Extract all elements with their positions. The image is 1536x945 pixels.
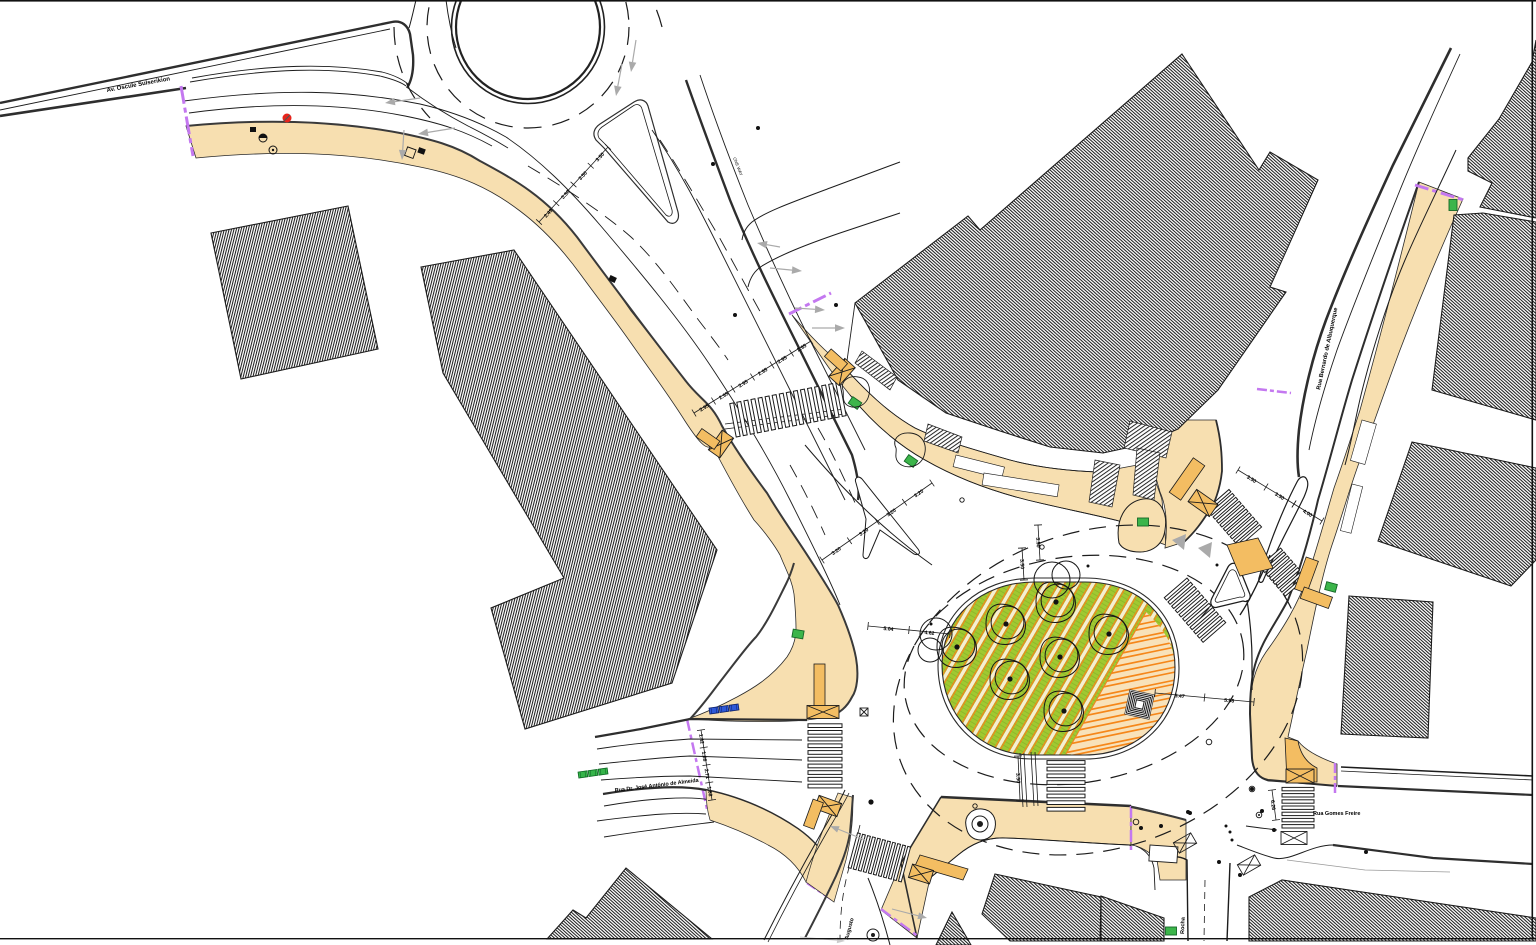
svg-text:5.04: 5.04 <box>883 626 894 633</box>
svg-text:5.47: 5.47 <box>1174 693 1185 700</box>
svg-text:4.62: 4.62 <box>924 630 935 637</box>
svg-text:Rocha: Rocha <box>1180 916 1187 934</box>
svg-text:3.50: 3.50 <box>1018 559 1025 570</box>
svg-text:3.50: 3.50 <box>1014 773 1020 783</box>
svg-text:Rua Gomes Freire: Rua Gomes Freire <box>1313 811 1360 817</box>
svg-text:5.56: 5.56 <box>1224 698 1235 705</box>
svg-text:3.50: 3.50 <box>1034 537 1041 548</box>
